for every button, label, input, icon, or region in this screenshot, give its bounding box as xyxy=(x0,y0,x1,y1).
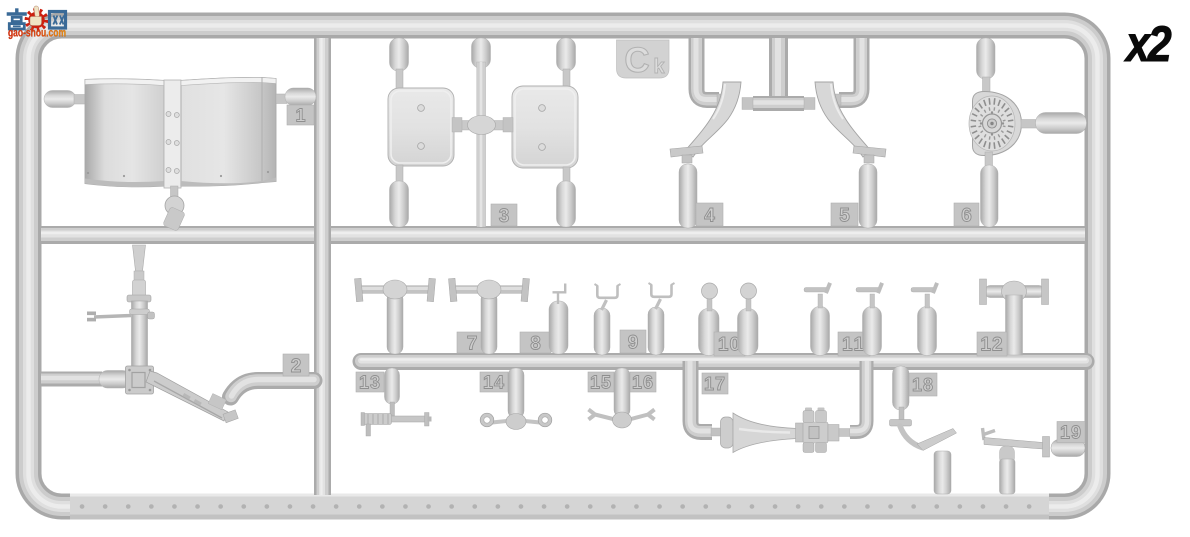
svg-text:6: 6 xyxy=(961,206,972,227)
svg-text:4: 4 xyxy=(704,206,715,227)
svg-text:15: 15 xyxy=(590,373,612,393)
svg-text:9: 9 xyxy=(628,333,639,354)
svg-text:8: 8 xyxy=(530,334,541,355)
svg-text:14: 14 xyxy=(483,373,505,393)
svg-text:13: 13 xyxy=(359,373,381,393)
svg-text:17: 17 xyxy=(704,374,726,394)
svg-text:16: 16 xyxy=(632,373,654,393)
svg-text:5: 5 xyxy=(839,206,850,227)
svg-text:2: 2 xyxy=(291,356,302,377)
svg-text:x2: x2 xyxy=(1123,16,1172,72)
svg-text:12: 12 xyxy=(980,335,1003,356)
svg-text:gao-shou.com: gao-shou.com xyxy=(8,28,66,40)
svg-text:C: C xyxy=(624,41,649,80)
svg-text:1: 1 xyxy=(295,106,305,126)
svg-text:7: 7 xyxy=(467,334,478,355)
svg-text:3: 3 xyxy=(499,206,510,227)
svg-text:19: 19 xyxy=(1060,423,1082,443)
svg-text:18: 18 xyxy=(912,375,934,395)
svg-text:k: k xyxy=(653,56,665,78)
